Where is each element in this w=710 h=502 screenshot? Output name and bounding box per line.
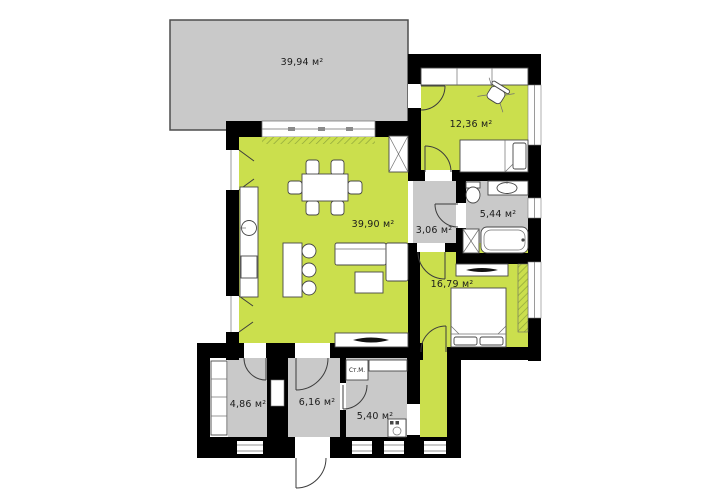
room-corridor (420, 347, 447, 438)
tv-stand-living (335, 333, 408, 347)
window-utility-right (384, 441, 404, 454)
floor-plan-page: 39,94 м² 12,36 м² 39,90 м² 3,06 м² 5,44 … (0, 0, 710, 502)
entrance-door (295, 437, 330, 488)
window-bedroom-top (528, 85, 541, 145)
room-area-label-living: 39,90 м² (352, 219, 395, 230)
bathtub (481, 227, 528, 253)
window-bathroom (528, 198, 541, 218)
dining-table (302, 174, 348, 201)
dresser-tv (456, 264, 508, 276)
utility-counter (369, 360, 407, 371)
hall-opening (408, 181, 413, 243)
floor-plan-canvas: 39,94 м² 12,36 м² 39,90 м² 3,06 м² 5,44 … (0, 0, 710, 502)
kitchen-island (283, 243, 316, 297)
room-area-label-bedroom-top: 12,36 м² (450, 119, 493, 130)
window-storage (237, 441, 263, 454)
window-corridor (424, 441, 446, 454)
room-area-label-bedroom-main: 16,79 м² (431, 279, 474, 290)
bar-stool (302, 281, 316, 295)
room-area-label-terrace: 39,94 м² (281, 57, 324, 68)
bathroom-sink (488, 181, 528, 195)
window-bedroom-main (528, 262, 541, 318)
bed-single (460, 140, 528, 172)
room-area-label-hall: 3,06 м² (416, 225, 453, 236)
room-area-label-bathroom: 5,44 м² (480, 209, 517, 220)
toilet (466, 182, 480, 203)
coffee-table (355, 272, 383, 293)
bed-double (451, 288, 506, 347)
pillow (480, 337, 503, 345)
room-area-label-storage: 4,86 м² (230, 399, 267, 410)
kitchen-counter (240, 187, 258, 297)
sliding-door (262, 121, 375, 144)
bar-stool (302, 263, 316, 277)
wall-niche (271, 380, 284, 406)
storage-shelves (211, 361, 227, 435)
corridor-opening (407, 404, 420, 435)
washing-machine-bath (463, 229, 479, 253)
corner-cabinet (389, 136, 408, 172)
pillow (454, 337, 477, 345)
room-area-label-entry: 6,16 м² (299, 397, 336, 408)
bar-stool (302, 244, 316, 258)
wardrobe-bedroom-top (421, 68, 528, 85)
wardrobe-hatch-strip (518, 264, 528, 332)
washer-label: Ст.М. (349, 368, 365, 374)
window-utility-left (352, 441, 372, 454)
cooktop (241, 256, 257, 278)
threshold-hatch (262, 137, 375, 144)
room-terrace (170, 20, 408, 130)
room-area-label-utility: 5,40 м² (357, 411, 394, 422)
